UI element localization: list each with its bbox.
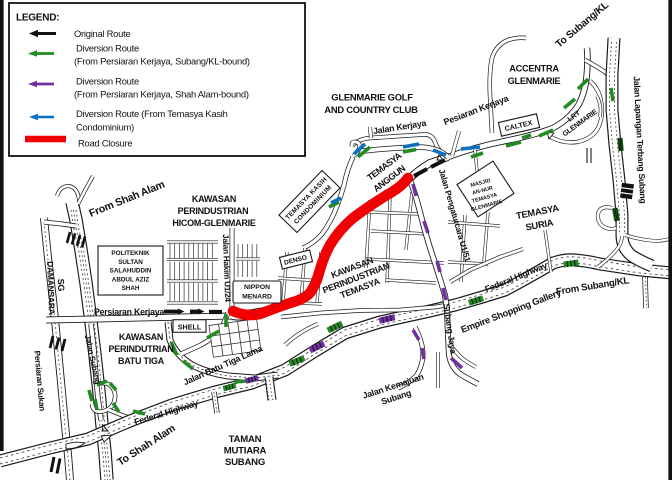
svg-text:SHAH: SHAH	[122, 285, 140, 292]
svg-text:LEGEND:: LEGEND:	[16, 13, 59, 24]
svg-text:MENARD: MENARD	[242, 294, 272, 301]
svg-text:HICOM-GLENMARIE: HICOM-GLENMARIE	[172, 218, 255, 228]
svg-text:GLENMARIE: GLENMARIE	[508, 76, 561, 86]
svg-text:KAWASAN: KAWASAN	[192, 194, 236, 204]
svg-text:SHELL: SHELL	[178, 323, 202, 332]
svg-text:SG: SG	[56, 278, 66, 291]
svg-text:BATU TIGA: BATU TIGA	[118, 356, 165, 366]
svg-text:PERINDUSTRIAN: PERINDUSTRIAN	[178, 206, 249, 216]
svg-text:Persiaran Kerjaya: Persiaran Kerjaya	[94, 307, 164, 317]
svg-text:POLITEKNIK: POLITEKNIK	[111, 250, 150, 257]
svg-text:GLENMARIE GOLF: GLENMARIE GOLF	[331, 92, 413, 103]
svg-text:SUBANG: SUBANG	[225, 457, 265, 468]
svg-text:AND COUNTRY CLUB: AND COUNTRY CLUB	[324, 104, 418, 115]
svg-text:DAMANSARA: DAMANSARA	[45, 261, 57, 315]
svg-text:SALAHUDDIN: SALAHUDDIN	[110, 268, 152, 275]
svg-text:ABDUL AZIZ: ABDUL AZIZ	[112, 276, 150, 283]
svg-text:NIPPON: NIPPON	[244, 284, 270, 291]
svg-text:Original Route: Original Route	[74, 28, 130, 39]
svg-text:Road Closure: Road Closure	[78, 138, 132, 149]
svg-text:Diversion Route: Diversion Route	[76, 76, 139, 87]
svg-text:Diversion Route (From Temasya: Diversion Route (From Temasya Kasih	[76, 108, 228, 119]
svg-text:(From Persiaran Kerjaya, Suban: (From Persiaran Kerjaya, Subang/KL-bound…	[74, 56, 250, 67]
svg-text:Diversion Route: Diversion Route	[76, 43, 139, 54]
svg-text:KAWASAN: KAWASAN	[119, 332, 163, 342]
svg-text:MUTIARA: MUTIARA	[224, 446, 267, 457]
svg-text:TAMAN: TAMAN	[229, 434, 262, 445]
svg-text:(From Persiaran Kerjaya, Shah: (From Persiaran Kerjaya, Shah Alam-bound…	[74, 89, 249, 100]
svg-text:PERINDUTRIAN: PERINDUTRIAN	[108, 344, 173, 354]
svg-text:SULTAN: SULTAN	[118, 259, 143, 266]
svg-text:ACCENTRA: ACCENTRA	[509, 64, 559, 74]
svg-text:Condominium): Condominium)	[76, 122, 134, 133]
